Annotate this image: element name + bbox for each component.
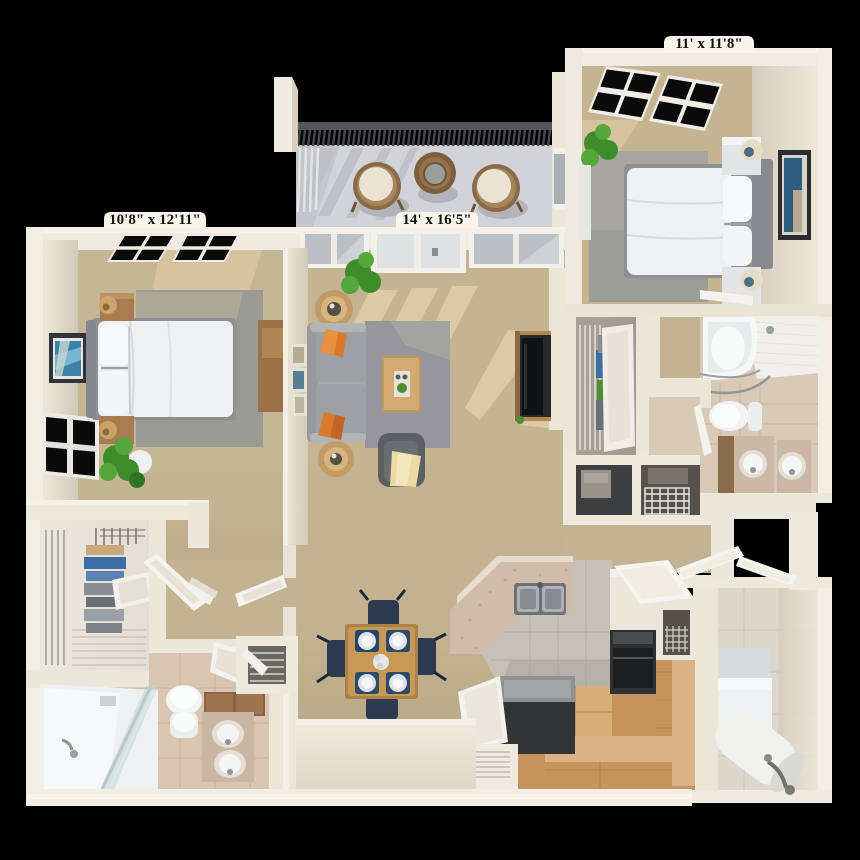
- svg-text:11' x 11'8": 11' x 11'8": [675, 36, 743, 52]
- svg-text:10'8" x 12'11": 10'8" x 12'11": [109, 212, 201, 228]
- svg-text:14' x 16'5": 14' x 16'5": [402, 212, 471, 228]
